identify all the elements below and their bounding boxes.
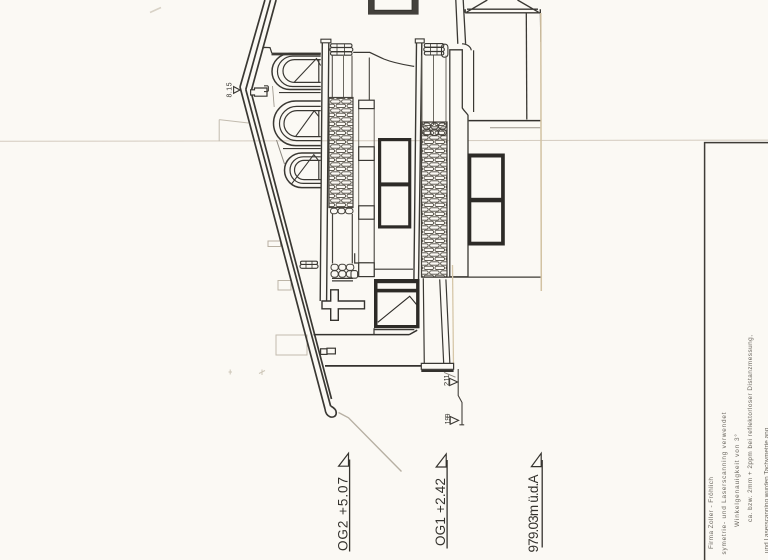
svg-text:Firma Zoller - Fröhlich: Firma Zoller - Fröhlich	[708, 477, 715, 549]
svg-text:OG2 +5.07: OG2 +5.07	[335, 477, 350, 551]
svg-text:1.99: 1.99	[443, 414, 452, 425]
svg-text:979.03m ü.d.A: 979.03m ü.d.A	[526, 475, 541, 553]
svg-text:8.15: 8.15	[226, 82, 233, 97]
svg-text:und Laserscanning wurden Tachy: und Laserscanning wurden Tachymetrie ang	[764, 427, 768, 553]
svg-text:2.11: 2.11	[442, 375, 451, 387]
svg-text:OG1 +2.42: OG1 +2.42	[433, 478, 448, 546]
svg-text:symetrie- und Laserscanning ve: symetrie- und Laserscanning verwendet	[721, 412, 728, 554]
svg-text:Winkelgenauigkeit von 3°: Winkelgenauigkeit von 3°	[733, 434, 741, 527]
svg-text:ca. bzw. 2mm + 2ppm bei reflek: ca. bzw. 2mm + 2ppm bei reflektorloser D…	[747, 335, 754, 522]
